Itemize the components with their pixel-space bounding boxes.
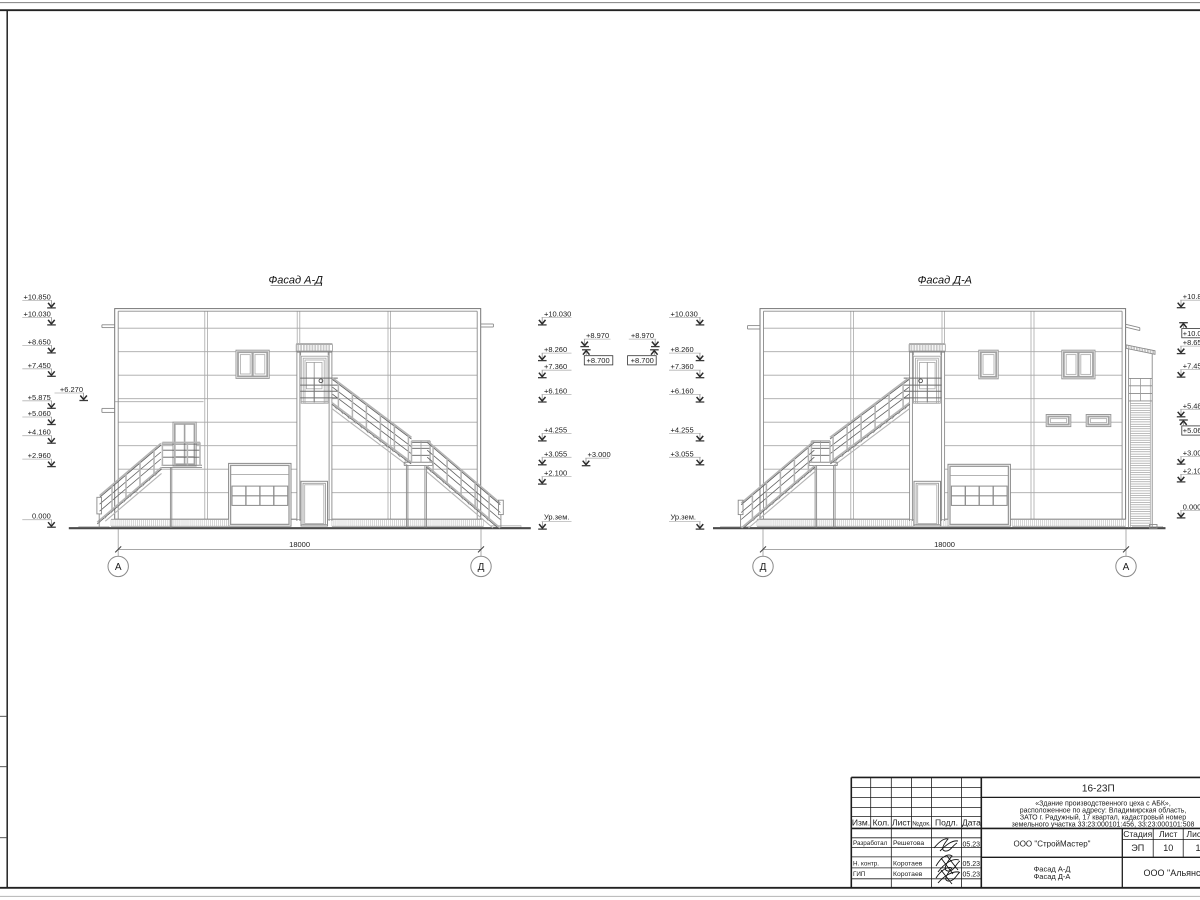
svg-text:Лист: Лист — [892, 818, 911, 828]
svg-text:Кол.: Кол. — [873, 818, 890, 828]
svg-text:Фасад Д-А: Фасад Д-А — [918, 275, 972, 287]
svg-text:Стадия: Стадия — [1123, 829, 1152, 839]
svg-text:Д: Д — [760, 562, 767, 573]
svg-text:Лист: Лист — [1159, 829, 1178, 839]
svg-text:№док.: №док. — [912, 820, 931, 827]
svg-text:Фасад Д-А: Фасад Д-А — [1034, 872, 1071, 881]
svg-text:05.23: 05.23 — [963, 841, 981, 848]
svg-text:ГИП: ГИП — [853, 871, 866, 878]
svg-text:Лист: Лист — [1187, 829, 1200, 839]
svg-text:Фасад А-Д: Фасад А-Д — [269, 275, 324, 287]
svg-text:земельного участка 33:23:00010: земельного участка 33:23:000101:456, 33:… — [1012, 821, 1195, 828]
svg-text:ООО "Альянс": ООО "Альянс" — [1144, 868, 1200, 878]
svg-text:+8.700: +8.700 — [631, 356, 654, 365]
svg-text:ЗАТО г. Радужный, 17 квартал,: ЗАТО г. Радужный, 17 квартал, кадастровы… — [1020, 813, 1186, 821]
svg-text:+5.060: +5.060 — [1183, 426, 1200, 435]
svg-text:Подл.: Подл. — [935, 818, 958, 828]
svg-text:Изм.: Изм. — [852, 818, 870, 828]
svg-text:+10.030: +10.030 — [1183, 329, 1200, 338]
svg-text:А: А — [115, 562, 122, 573]
svg-text:16-23П: 16-23П — [1082, 784, 1115, 795]
svg-text:Коротаев: Коротаев — [893, 860, 923, 867]
svg-text:Разработал: Разработал — [853, 839, 888, 847]
svg-text:Н. контр.: Н. контр. — [853, 860, 879, 867]
svg-text:Решетова: Решетова — [893, 840, 924, 847]
svg-text:05.23: 05.23 — [963, 872, 981, 879]
svg-text:18000: 18000 — [934, 540, 955, 549]
svg-text:18000: 18000 — [289, 540, 310, 549]
svg-text:ЭП: ЭП — [1131, 843, 1144, 853]
svg-text:Ур.зем.: Ур.зем. — [544, 512, 569, 521]
svg-text:Д: Д — [478, 562, 485, 573]
svg-text:Ур.зем.: Ур.зем. — [671, 512, 696, 521]
svg-text:расположенное по адресу: Влади: расположенное по адресу: Владимирская об… — [1020, 807, 1187, 815]
svg-text:Дата: Дата — [962, 818, 981, 828]
svg-text:Коротаев: Коротаев — [893, 871, 923, 878]
svg-text:+8.700: +8.700 — [587, 356, 610, 365]
svg-text:ООО "СтройМастер": ООО "СтройМастер" — [1013, 840, 1090, 849]
svg-text:А: А — [1123, 562, 1130, 573]
svg-text:05.23: 05.23 — [963, 861, 981, 868]
svg-text:10: 10 — [1163, 843, 1173, 853]
svg-text:16: 16 — [1196, 843, 1200, 853]
